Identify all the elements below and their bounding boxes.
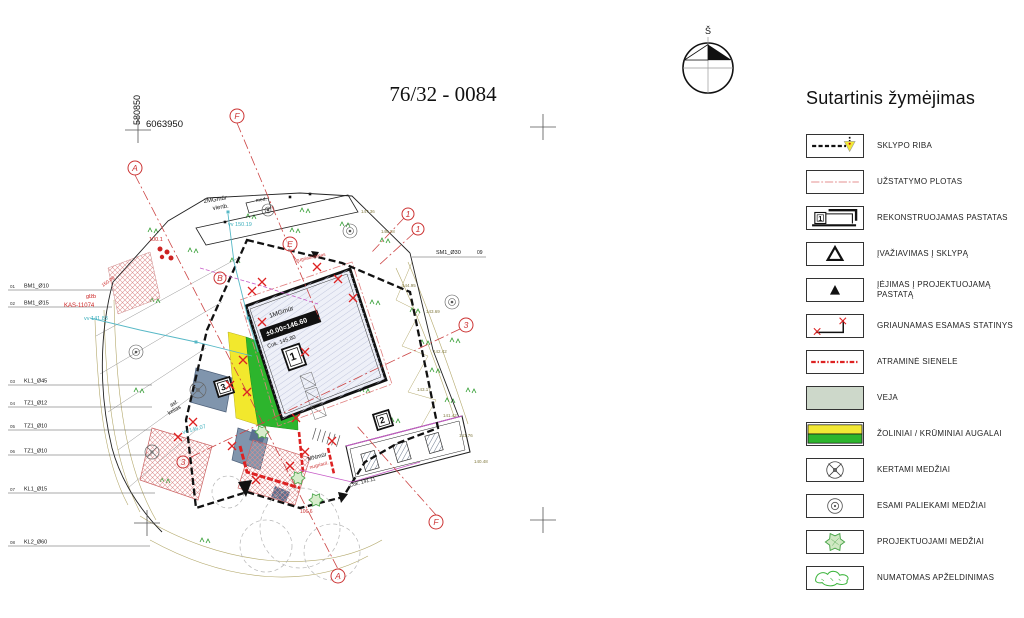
north-label: Š [705,26,711,36]
legend-symbol-iejimas [806,278,864,302]
section-marker-letter: F [433,517,439,527]
plan-label: 100.1 [149,237,163,243]
plan-label: 09 [477,250,483,256]
legend-item: ĮVAŽIAVIMAS Į SKLYPĄ [806,241,1022,267]
plan-label: glžb [86,294,96,300]
legend-symbol-numatomas-apzeldinimas [806,566,864,590]
plan-label: vv 146.07 [182,424,207,436]
legend-item-label: ĮĖJIMAS Į PROJEKTUOJAMĄ PASTATĄ [877,280,1015,301]
plan-label: 148.28 [381,229,395,234]
section-marker-letter: B [217,273,223,283]
legend-item-label: ĮVAŽIAVIMAS Į SKLYPĄ [877,249,1015,259]
row-building [346,416,470,482]
section-marker-letter: 3 [181,457,186,467]
section-marker-letter: 3 [464,320,469,330]
utility-callout-label: TZ1_Ø12 [24,401,47,407]
legend-symbol-zoliniai [806,422,864,446]
legend-item: 1 REKONSTRUOJAMAS PASTATAS [806,205,1022,231]
plan-label: 144.95 [402,283,416,288]
plan-label: 143.69 [426,309,440,314]
plan-label: med. [255,196,267,204]
legend-item: PROJEKTUOJAMI MEDŽIAI [806,529,1022,555]
legend-item-label: PROJEKTUOJAMI MEDŽIAI [877,537,1015,547]
utility-callout-label: KL1_Ø15 [24,487,47,493]
utility-callout-number: 01 [10,284,16,289]
legend-item-label: GRIAUNAMAS ESAMAS STATINYS [877,321,1015,331]
section-marker-letter: E [287,239,293,249]
legend-symbol-griaunamas [806,314,864,338]
legend-item: ESAMI PALIEKAMI MEDŽIAI [806,493,1022,519]
utility-callout-number: 05 [10,424,16,429]
plan-label: 147.36 [361,209,375,214]
legend-item-label: ŽOLINIAI / KRŪMINIAI AUGALAI [877,429,1015,439]
utility-callout-number: 07 [10,487,16,492]
legend-item: KERTAMI MEDŽIAI [806,457,1022,483]
legend: Sutartinis žymėjimas SKLYPO RIBA UŽSTATY… [806,88,1022,601]
section-marker-letter: 1 [416,224,421,234]
legend-item-label: NUMATOMAS APŽELDINIMAS [877,573,1015,583]
plan-label: 141.76 [459,433,473,438]
legend-item-label: ATRAMINĖ SIENELE [877,357,1015,367]
utility-callout-label: KL1_Ø45 [24,379,47,385]
legend-item: ŽOLINIAI / KRŪMINIAI AUGALAI [806,421,1022,447]
utility-callout-label: TZ1_Ø10 [24,449,47,455]
legend-item: UŽSTATYMO PLOTAS [806,169,1022,195]
drawing-number: 76/32 - 0084 [338,82,548,107]
legend-symbol-rekonstruojamas-pastatas: 1 [806,206,864,230]
utility-callout-label: TZ1_Ø10 [24,424,47,430]
legend-item-label: SKLYPO RIBA [877,141,1015,151]
legend-symbol-atramine-sienele [806,350,864,374]
legend-symbol-sklypo-riba [806,134,864,158]
utility-callout-number: 02 [10,301,16,306]
legend-item: SKLYPO RIBA [806,133,1022,159]
plan-label: 143.17 [417,387,431,392]
section-marker-letter: A [131,163,138,173]
utility-callout-number: 04 [10,401,16,406]
plan-label: kelias [167,404,182,416]
survey-points-red [158,247,174,261]
plan-label: SM1_Ø30 [436,250,461,256]
plan-label: 141.42 [443,413,457,418]
legend-item: VEJA [806,385,1022,411]
plan-label: KAS-11074 [64,303,95,309]
utility-callout-number: 06 [10,449,16,454]
utility-callout-label: BM1_Ø10 [24,284,49,290]
legend-symbol-esami-medziai [806,494,864,518]
legend-item-label: REKONSTRUOJAMAS PASTATAS [877,213,1015,223]
rail-zone-hatch [108,252,160,314]
legend-symbol-kertami-medziai [806,458,864,482]
plan-label: vv 141.83 [84,316,108,322]
legend-item: GRIAUNAMAS ESAMAS STATINYS [806,313,1022,339]
legend-item: ATRAMINĖ SIENELE [806,349,1022,375]
section-marker-letter: 1 [406,209,411,219]
plan-label: 106.6 [300,509,313,515]
legend-item-label: UŽSTATYMO PLOTAS [877,177,1015,187]
utility-callout-label: BM1_Ø15 [24,301,49,307]
legend-symbol-veja [806,386,864,410]
utility-callout-number: 03 [10,379,16,384]
site-plan-sheet: 01BM1_Ø1002BM1_Ø1503KL1_Ø4504TZ1_Ø1205TZ… [0,0,1024,618]
legend-item-label: KERTAMI MEDŽIAI [877,465,1015,475]
legend-heading: Sutartinis žymėjimas [806,88,1022,109]
svg-text:1: 1 [818,214,822,223]
legend-item-label: ESAMI PALIEKAMI MEDŽIAI [877,501,1015,511]
legend-item: ĮĖJIMAS Į PROJEKTUOJAMĄ PASTATĄ [806,277,1022,303]
plan-label: 6063950 [146,119,183,130]
legend-symbol-projektuojami-medziai [806,530,864,554]
section-marker-letter: F [234,111,240,121]
north-compass: Š [668,25,748,105]
section-marker-letter: A [334,571,341,581]
utility-callout-label: KL2_Ø60 [24,540,47,546]
plan-label: 580850 [132,95,142,125]
legend-item-label: VEJA [877,393,1015,403]
legend-symbol-ivaziavimas [806,242,864,266]
legend-item: NUMATOMAS APŽELDINIMAS [806,565,1022,591]
plan-label: vv 150.19 [228,222,252,228]
legend-symbol-uzstatymo-plotas [806,170,864,194]
plan-label: 140.48 [474,459,488,464]
plan-label: 142.42 [433,349,447,354]
utility-callout-number: 08 [10,540,16,545]
